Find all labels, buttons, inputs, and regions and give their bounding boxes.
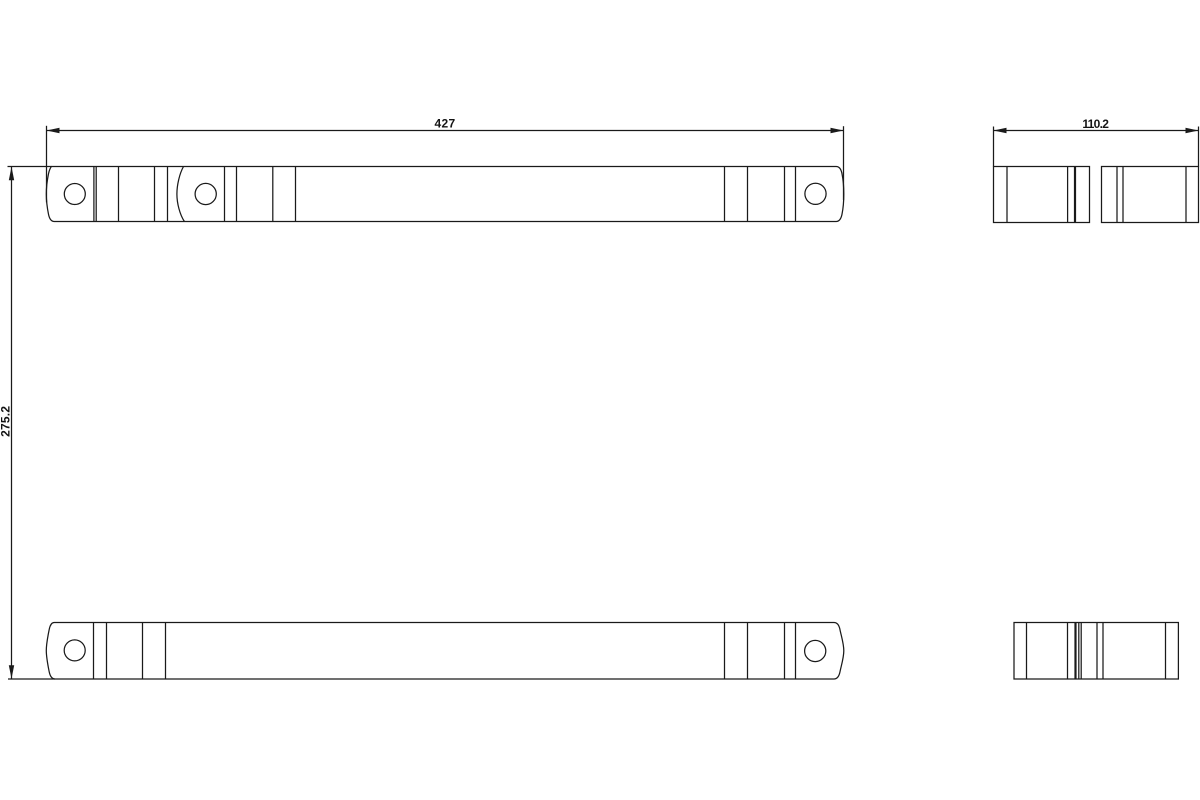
svg-text:427: 427 <box>435 117 456 131</box>
svg-text:275.2: 275.2 <box>0 406 12 437</box>
svg-text:110.2: 110.2 <box>1082 117 1109 131</box>
